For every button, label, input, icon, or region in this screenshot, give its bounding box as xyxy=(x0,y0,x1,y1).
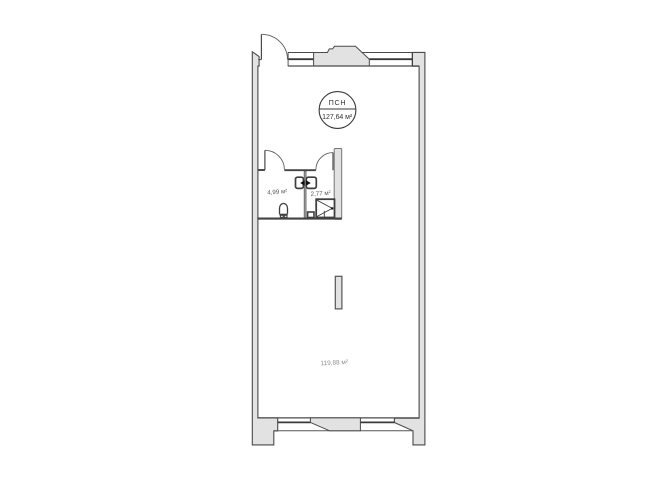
svg-text:127,64 м²: 127,64 м² xyxy=(322,114,353,121)
svg-text:4,99 м²: 4,99 м² xyxy=(267,188,288,196)
svg-text:119,88 м²: 119,88 м² xyxy=(320,359,348,367)
svg-text:2,77 м²: 2,77 м² xyxy=(310,190,331,198)
svg-text:ПСН: ПСН xyxy=(329,98,347,107)
